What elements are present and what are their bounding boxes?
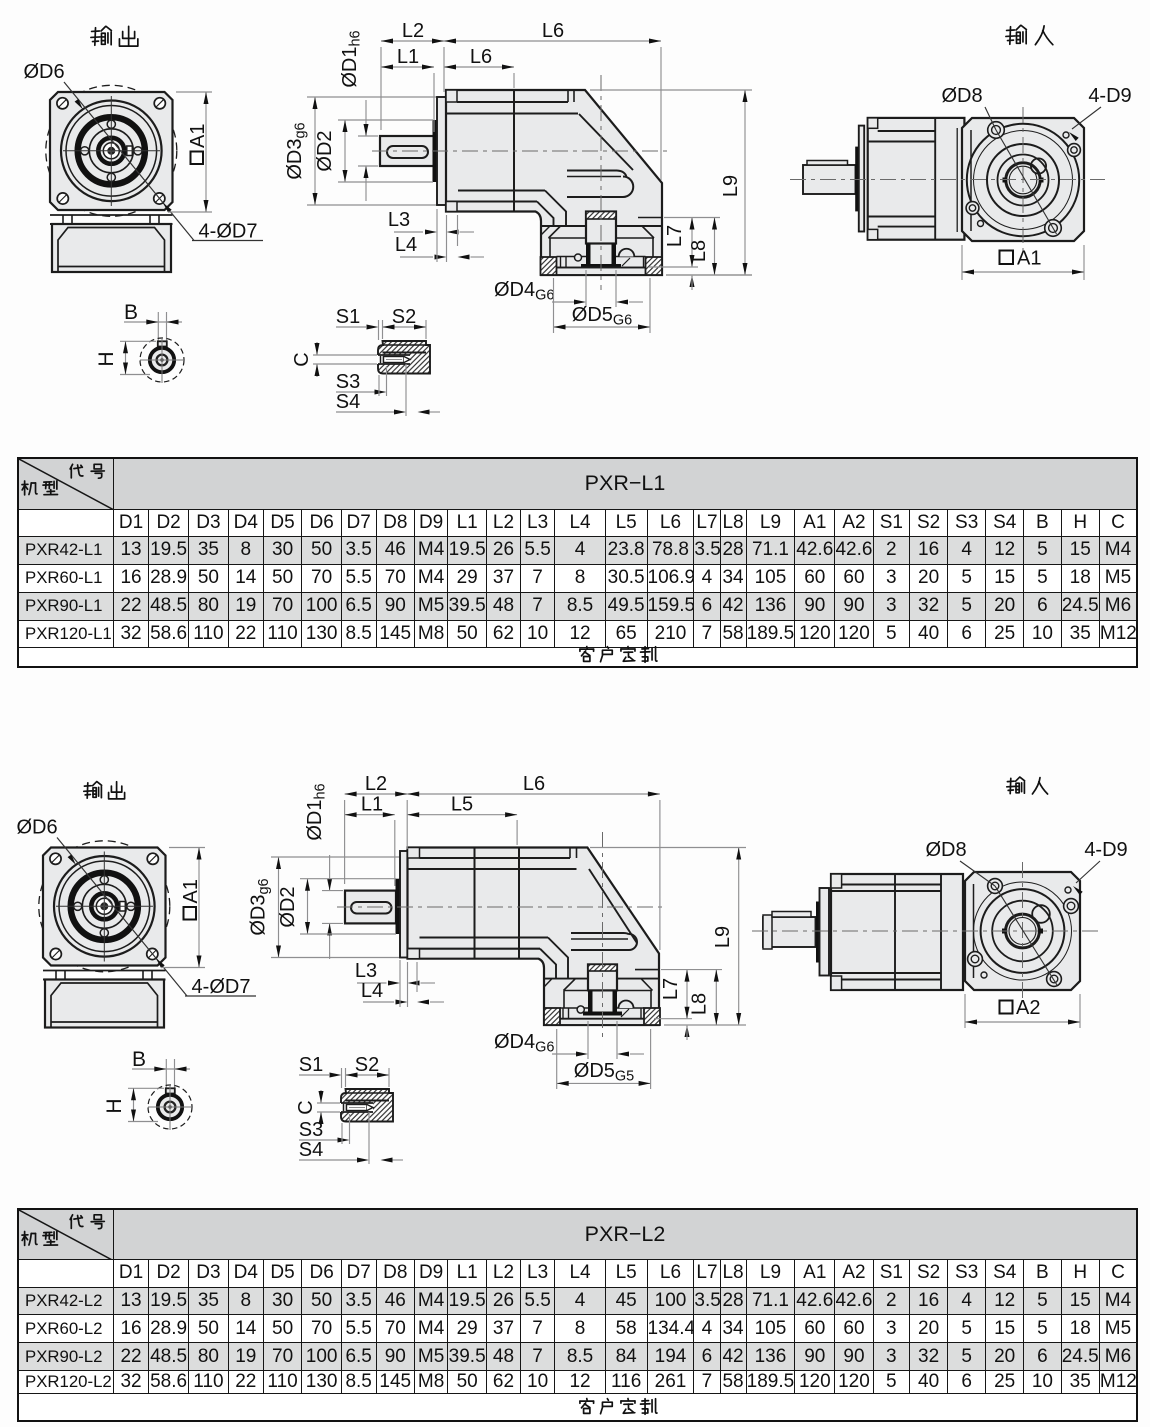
svg-text:L1: L1 [397, 46, 419, 68]
svg-text:ØD8: ØD8 [941, 85, 982, 107]
svg-text:L5: L5 [451, 794, 473, 816]
svg-text:A1: A1 [1017, 248, 1041, 270]
svg-text:L6: L6 [542, 20, 564, 42]
svg-text:L6: L6 [470, 46, 492, 68]
svg-text:S4: S4 [299, 1139, 323, 1161]
svg-text:H: H [103, 1098, 126, 1113]
svg-text:S2: S2 [392, 306, 416, 328]
svg-text:A1: A1 [187, 124, 209, 148]
svg-text:ØD5G6: ØD5G6 [572, 304, 632, 329]
svg-text:S1: S1 [299, 1054, 323, 1076]
svg-text:L7: L7 [664, 225, 686, 247]
svg-text:S3: S3 [299, 1119, 323, 1141]
svg-text:L9: L9 [712, 926, 734, 948]
svg-text:ØD4G6: ØD4G6 [494, 279, 554, 304]
svg-text:L3: L3 [355, 960, 377, 982]
svg-text:L7: L7 [660, 978, 682, 1000]
svg-text:ØD6: ØD6 [16, 817, 57, 839]
svg-text:A1: A1 [180, 879, 202, 903]
svg-text:4-D9: 4-D9 [1084, 839, 1127, 861]
svg-text:S3: S3 [336, 371, 360, 393]
svg-text:L9: L9 [720, 175, 742, 197]
svg-text:ØD3g6: ØD3g6 [284, 122, 309, 179]
svg-text:ØD6: ØD6 [23, 61, 64, 83]
svg-text:L3: L3 [388, 209, 410, 231]
svg-text:S4: S4 [336, 391, 360, 413]
svg-text:B: B [132, 1048, 146, 1071]
svg-text:L8: L8 [688, 240, 710, 262]
svg-text:L8: L8 [689, 993, 711, 1015]
svg-text:4-ØD7: 4-ØD7 [192, 976, 251, 998]
svg-text:ØD2: ØD2 [314, 130, 336, 171]
svg-text:H: H [95, 351, 118, 366]
svg-text:4-ØD7: 4-ØD7 [199, 221, 258, 243]
svg-text:L4: L4 [361, 980, 383, 1002]
svg-text:S2: S2 [355, 1054, 379, 1076]
svg-text:4-D9: 4-D9 [1088, 85, 1131, 107]
svg-text:ØD1h6: ØD1h6 [304, 783, 329, 840]
svg-text:L2: L2 [402, 20, 424, 42]
svg-text:ØD2: ØD2 [277, 886, 299, 927]
svg-text:B: B [124, 301, 138, 324]
svg-text:ØD3g6: ØD3g6 [248, 878, 273, 935]
svg-text:C: C [291, 352, 313, 366]
svg-text:C: C [295, 1100, 317, 1114]
svg-text:A2: A2 [1016, 997, 1040, 1019]
svg-text:ØD8: ØD8 [925, 839, 966, 861]
svg-text:ØD4G6: ØD4G6 [494, 1031, 554, 1056]
svg-text:S1: S1 [336, 306, 360, 328]
svg-text:ØD5G5: ØD5G5 [574, 1060, 634, 1085]
svg-text:L1: L1 [361, 794, 383, 816]
svg-text:ØD1h6: ØD1h6 [339, 30, 364, 87]
svg-text:L6: L6 [523, 773, 545, 795]
svg-text:L4: L4 [395, 234, 417, 256]
svg-text:L2: L2 [365, 773, 387, 795]
